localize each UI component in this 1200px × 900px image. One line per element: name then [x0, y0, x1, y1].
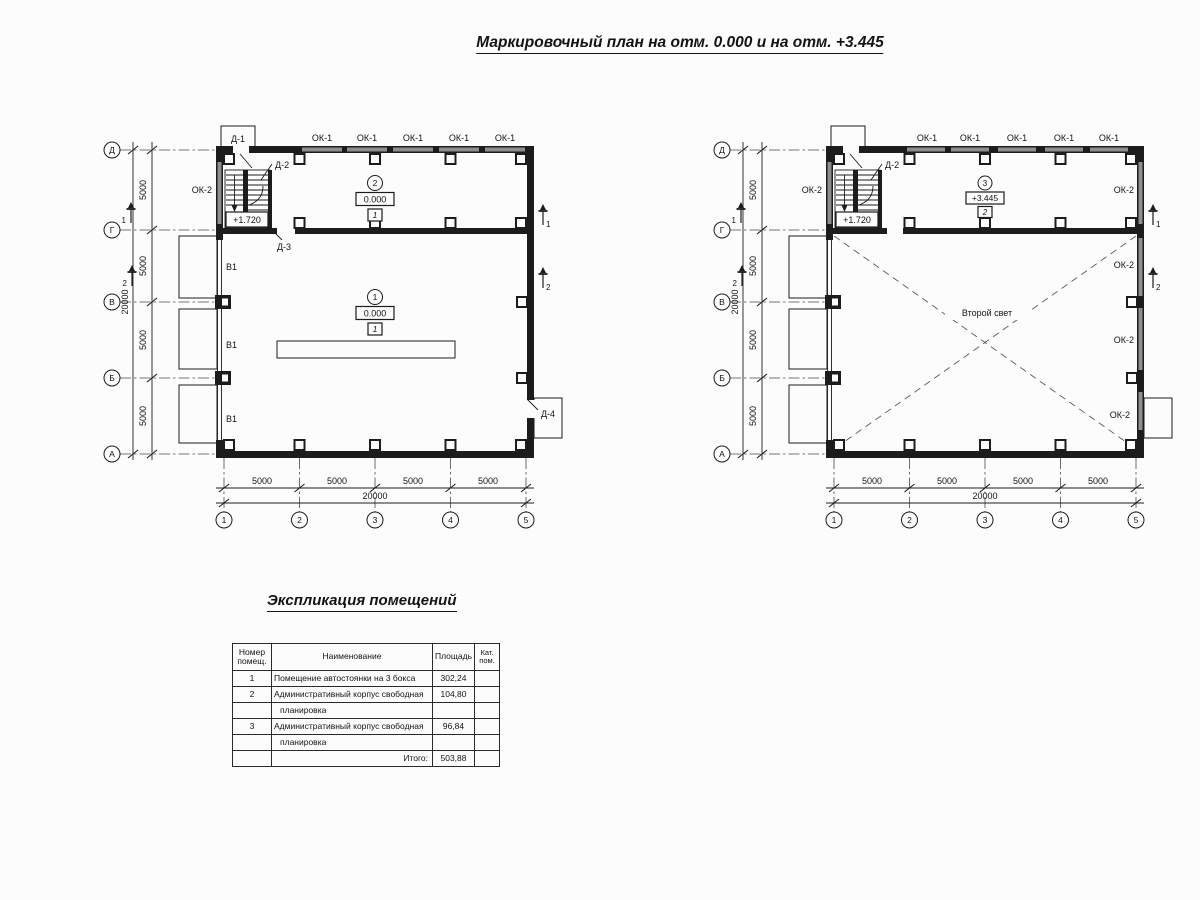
row-bubble: В — [719, 297, 725, 307]
gate-label-v1: В1 — [226, 414, 237, 424]
svg-text:0.000: 0.000 — [364, 195, 387, 205]
header-name: Наименование — [272, 644, 433, 671]
header-category: Кат. пом. — [475, 644, 500, 671]
right-plan-stair: +1.720 — [835, 170, 882, 228]
drawing-sheet: 5000 5000 5000 5000 20000 Д Г В Б А 5000… — [0, 0, 1200, 900]
window-label-ok2: ОК-2 — [1114, 185, 1134, 195]
dim-5000: 5000 — [748, 406, 758, 426]
dim-5000: 5000 — [748, 256, 758, 276]
second-light-cross: Второй свет — [834, 236, 1136, 449]
window-label-ok2: ОК-2 — [1114, 335, 1134, 345]
plans-drawing: 5000 5000 5000 5000 20000 Д Г В Б А 5000… — [0, 0, 1200, 900]
table-row: планировка — [233, 703, 500, 719]
table-row: 2 Административный корпус свободная 104,… — [233, 687, 500, 703]
door-label-d3: Д-3 — [277, 242, 291, 252]
dim-20000: 20000 — [972, 491, 997, 501]
dim-5000: 5000 — [478, 476, 498, 486]
col-bubble: 1 — [832, 515, 837, 525]
dim-20000: 20000 — [730, 289, 740, 314]
svg-text:1: 1 — [546, 220, 551, 229]
stair-level-label: +1.720 — [233, 215, 261, 225]
svg-text:1: 1 — [373, 292, 378, 302]
left-plan-row-bubbles: Д Г В Б А — [104, 142, 120, 462]
right-plan: 5000 5000 5000 5000 20000 Д Г В Б А 5000… — [714, 126, 1172, 528]
col-bubble: 5 — [524, 515, 529, 525]
col-bubble: 4 — [1058, 515, 1063, 525]
stair-level-label: +1.720 — [843, 215, 871, 225]
left-plan: 5000 5000 5000 5000 20000 Д Г В Б А 5000… — [104, 126, 562, 528]
window-label-ok1: ОК-1 — [495, 133, 515, 143]
dim-5000: 5000 — [403, 476, 423, 486]
door-label-d2: Д-2 — [885, 160, 899, 170]
dim-5000: 5000 — [748, 180, 758, 200]
row-bubble: Б — [109, 373, 115, 383]
dim-5000: 5000 — [138, 330, 148, 350]
right-plan-row-bubbles: Д Г В Б А — [714, 142, 730, 462]
svg-text:2: 2 — [733, 279, 738, 288]
gate-label-v1: В1 — [226, 340, 237, 350]
dim-20000: 20000 — [120, 289, 130, 314]
left-plan-exterior — [179, 126, 562, 443]
dim-5000: 5000 — [327, 476, 347, 486]
floor-pit — [277, 341, 455, 358]
dim-5000: 5000 — [937, 476, 957, 486]
dim-5000: 5000 — [748, 330, 758, 350]
svg-text:3: 3 — [983, 179, 988, 188]
window-label-ok1: ОК-1 — [449, 133, 469, 143]
col-bubble: 3 — [983, 515, 988, 525]
svg-text:2: 2 — [1156, 283, 1161, 292]
table-total-row: Итого: 503,88 — [233, 751, 500, 767]
svg-text:1: 1 — [1156, 220, 1161, 229]
col-bubble: 2 — [907, 515, 912, 525]
door-label-d2: Д-2 — [275, 160, 289, 170]
row-bubble: А — [719, 449, 725, 459]
second-light-label: Второй свет — [962, 308, 1012, 318]
header-room-number: Номер помещ. — [233, 644, 272, 671]
window-label-ok2: ОК-2 — [192, 185, 212, 195]
row-bubble: Д — [719, 145, 725, 155]
window-label-ok1: ОК-1 — [1054, 133, 1074, 143]
dim-5000: 5000 — [862, 476, 882, 486]
dim-5000: 5000 — [252, 476, 272, 486]
col-bubble: 2 — [297, 515, 302, 525]
dim-5000: 5000 — [1088, 476, 1108, 486]
col-bubble: 5 — [1134, 515, 1139, 525]
right-plan-vertical-dims: 5000 5000 5000 5000 20000 — [730, 142, 767, 460]
dim-5000: 5000 — [1013, 476, 1033, 486]
window-label-ok1: ОК-1 — [960, 133, 980, 143]
table-row: 1 Помещение автостоянки на 3 бокса 302,2… — [233, 671, 500, 687]
window-label-ok1: ОК-1 — [917, 133, 937, 143]
right-plan-exterior — [789, 126, 1172, 443]
window-label-ok1: ОК-1 — [1007, 133, 1027, 143]
left-plan-vertical-dims: 5000 5000 5000 5000 20000 — [120, 142, 157, 460]
room-schedule-table: Номер помещ. Наименование Площадь Кат. п… — [232, 643, 500, 767]
row-bubble: А — [109, 449, 115, 459]
gate-label-v1: В1 — [226, 262, 237, 272]
door-label-d4: Д-4 — [541, 409, 555, 419]
svg-text:2: 2 — [982, 208, 988, 217]
room-marker-3: 3 +3.445 2 — [966, 176, 1004, 218]
svg-text:1: 1 — [122, 216, 127, 225]
dim-20000: 20000 — [362, 491, 387, 501]
window-label-ok1: ОК-1 — [357, 133, 377, 143]
svg-text:1: 1 — [732, 216, 737, 225]
svg-text:2: 2 — [123, 279, 128, 288]
left-plan-stair: +1.720 — [225, 170, 272, 228]
svg-text:1: 1 — [373, 324, 378, 334]
door-label-d1: Д-1 — [231, 134, 245, 144]
svg-text:1: 1 — [373, 210, 378, 220]
svg-text:+3.445: +3.445 — [972, 193, 999, 203]
window-label-ok2: ОК-2 — [1110, 410, 1130, 420]
dim-5000: 5000 — [138, 406, 148, 426]
svg-text:2: 2 — [373, 178, 378, 188]
room-marker-2: 2 0.000 1 — [356, 176, 394, 222]
row-bubble: Г — [110, 225, 115, 235]
row-bubble: Д — [109, 145, 115, 155]
dim-5000: 5000 — [138, 180, 148, 200]
dim-5000: 5000 — [138, 256, 148, 276]
window-label-ok2: ОК-2 — [1114, 260, 1134, 270]
header-area: Площадь — [433, 644, 475, 671]
window-label-ok1: ОК-1 — [403, 133, 423, 143]
row-bubble: Б — [719, 373, 725, 383]
table-row: 3 Административный корпус свободная 96,8… — [233, 719, 500, 735]
window-label-ok1: ОК-1 — [1099, 133, 1119, 143]
room-marker-1: 1 0.000 1 — [356, 290, 394, 336]
col-bubble: 4 — [448, 515, 453, 525]
row-bubble: В — [109, 297, 115, 307]
row-bubble: Г — [720, 225, 725, 235]
col-bubble: 1 — [222, 515, 227, 525]
window-label-ok2: ОК-2 — [802, 185, 822, 195]
svg-text:0.000: 0.000 — [364, 309, 387, 319]
sheet-title: Маркировочный план на отм. 0.000 и на от… — [476, 34, 883, 52]
table-row: планировка — [233, 735, 500, 751]
schedule-title: Экспликация помещений — [267, 592, 457, 610]
window-label-ok1: ОК-1 — [312, 133, 332, 143]
col-bubble: 3 — [373, 515, 378, 525]
svg-text:2: 2 — [546, 283, 551, 292]
